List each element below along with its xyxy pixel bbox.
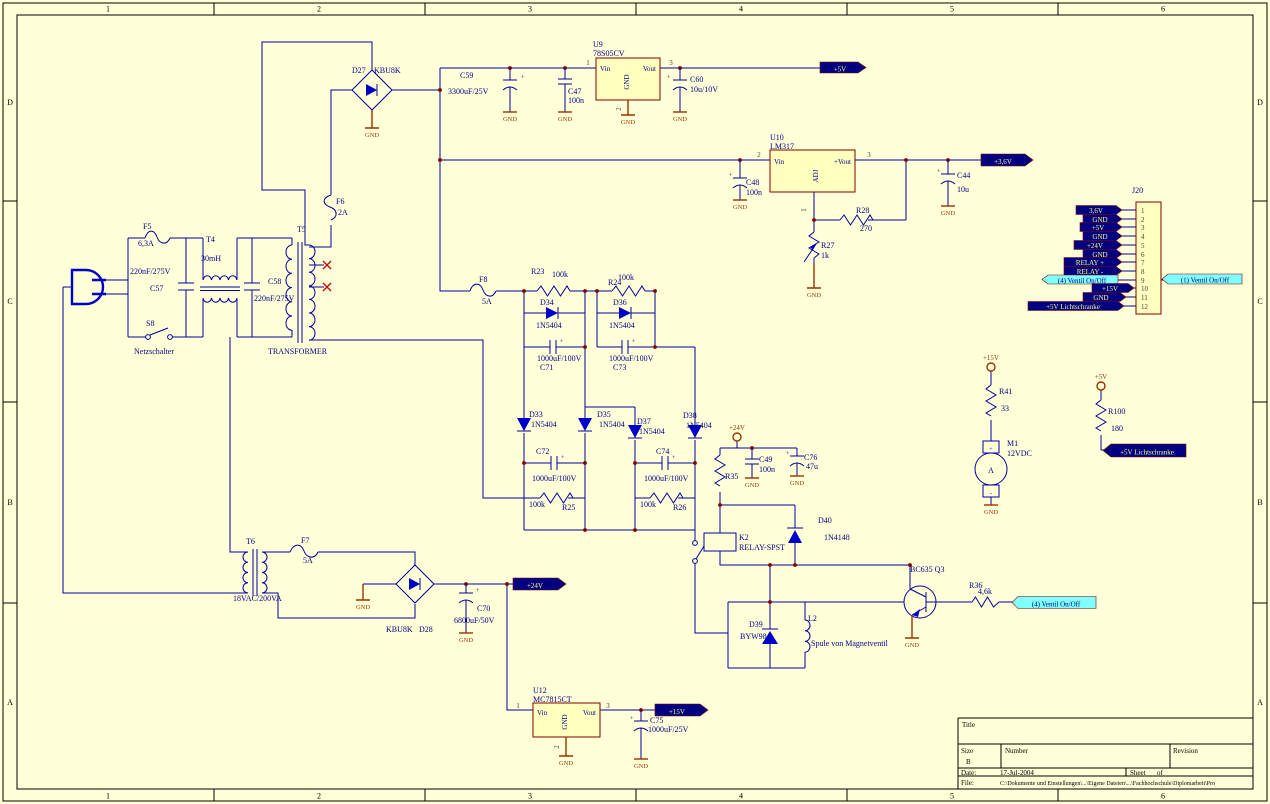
title-block: Title Size B Number Revision Date: 17-Ju… [958, 718, 1253, 789]
svg-text:GND: GND [984, 509, 998, 516]
motor-m1-plus: + [989, 447, 993, 453]
cap-c48-ref: C48 [746, 178, 759, 187]
fuse-f5[interactable]: F5 6,3A [138, 222, 170, 248]
power-port-15v-label: +15V [983, 354, 999, 362]
date-label: Date: [961, 769, 976, 777]
cap-c48-value: 100n [746, 188, 762, 197]
fuse-f8-value: 5A [482, 297, 492, 306]
cap-c75-value: 1000uF/25V [648, 725, 689, 734]
power-port-24v-label: +24V [729, 424, 745, 432]
svg-text:GND: GND [905, 642, 919, 649]
resistor-r100[interactable]: R100 180 [1096, 400, 1125, 433]
svg-text:GND: GND [745, 482, 759, 489]
cap-c76[interactable]: + C76 47u [786, 448, 818, 476]
diode-d34[interactable]: D34 1N5404 [536, 298, 562, 330]
svg-text:+: + [476, 588, 480, 594]
transformer-t6-value: 18VAC/200VA [233, 594, 282, 603]
svg-text:+: + [667, 75, 671, 81]
potentiometer-r27-ref: R27 [821, 241, 834, 250]
cap-c57[interactable]: 220nF/275V C57 [130, 267, 171, 293]
power-flag-15v-label: +15V [669, 708, 685, 716]
diode-d33-value: 1N5404 [531, 420, 557, 429]
fuse-f8-ref: F8 [479, 275, 487, 284]
resistor-r23[interactable]: R23 100k [531, 267, 570, 296]
gnd-symbol: GND [905, 615, 919, 649]
u9-pin1: 1 [586, 59, 590, 67]
file-label: File: [961, 779, 974, 787]
relay-k2-value: RELAY-SPST [739, 543, 785, 552]
potentiometer-r27-value: 1k [821, 251, 829, 260]
resistor-r25-value: 100k [529, 500, 545, 509]
size-value: B [966, 758, 971, 766]
cap-c59[interactable]: + C59 3300uF/25V [448, 68, 525, 112]
gnd-symbol: GND [559, 737, 573, 767]
diode-d39[interactable]: D39 BYW98 [740, 620, 778, 644]
cap-c72[interactable]: + C72 1000uF/100V [532, 447, 577, 483]
u10-pin-vout: +Vout [834, 158, 851, 166]
fuse-f7-value: 5A [303, 556, 313, 565]
switch-s8-value: Netzschalter [134, 347, 174, 356]
resistor-r24[interactable]: R24 100k [608, 273, 645, 296]
bridge-d28-value: KBU8K [386, 625, 413, 634]
gnd-symbol: GND [941, 206, 955, 217]
bridge-d28[interactable]: KBU8K D28 [386, 565, 434, 634]
gnd-symbol: GND [733, 200, 747, 211]
inductor-l2-value: Spule von Magnetventil [811, 639, 889, 648]
wires [63, 42, 1168, 710]
j20-pin: 5 [1141, 242, 1145, 250]
cap-c47-ref: C47 [568, 87, 581, 96]
cap-c58-ref: C58 [268, 277, 281, 286]
cap-c74[interactable]: + C74 1000uF/100V [644, 447, 689, 483]
number-label: Number [1005, 747, 1029, 755]
transistor-q3[interactable]: BC635 Q3 [904, 565, 944, 618]
fuse-f5-value: 6,3A [138, 239, 154, 248]
fuse-f6-ref: F6 [336, 197, 344, 206]
j20-net-flags[interactable]: 3,6V GND +5V GND +24V GND RELAY + RELAY … [1028, 206, 1242, 312]
u10-pin-adj: ADJ [812, 169, 820, 182]
svg-text:GND: GND [459, 637, 473, 644]
svg-text:+: + [729, 173, 733, 179]
svg-text:+: + [561, 455, 565, 461]
col-label: 6 [1161, 792, 1165, 801]
row-label: B [7, 498, 12, 507]
power-port-5v-label: +5V [1095, 373, 1108, 381]
resistor-r41-ref: R41 [999, 387, 1012, 396]
cap-c58-value: 220nF/275V [254, 294, 295, 303]
gnd-symbol: GND [503, 112, 517, 123]
choke-t4[interactable]: T4 30mH [201, 235, 237, 302]
resistor-r36[interactable]: R36 4,6k [969, 581, 999, 607]
gnd-symbol: GND [807, 264, 821, 299]
cap-c76-ref: C76 [804, 453, 817, 462]
col-label: 5 [950, 5, 954, 14]
cap-c47[interactable]: C47 100n [558, 68, 584, 112]
cap-c75[interactable]: + C75 1000uF/25V [630, 710, 689, 759]
cap-c44-value: 10u [957, 185, 969, 194]
col-label: 4 [739, 5, 743, 14]
j20-pin: 7 [1141, 259, 1145, 267]
resistor-r100-value: 180 [1111, 424, 1123, 433]
power-port-5v[interactable]: +5V [1095, 373, 1108, 390]
relay-k2-ref: K2 [739, 533, 749, 542]
transformer-t6[interactable]: T6 18VAC/200VA [233, 537, 282, 603]
svg-text:GND: GND [356, 604, 370, 611]
power-flag-36v[interactable]: +3,6V [981, 154, 1033, 166]
j20-pin: 3 [1141, 224, 1145, 232]
diode-d34-value: 1N5404 [536, 321, 562, 330]
bridge-d27-value: KBU8K [374, 66, 401, 75]
regulator-u12-value: MC7815CT [533, 695, 572, 704]
resistor-r25[interactable]: 100k R25 [529, 493, 575, 512]
row-label: A [7, 698, 13, 707]
diode-d37[interactable]: D37 1N5404 [628, 417, 665, 438]
svg-text:GND: GND [733, 204, 747, 211]
j20-pin: 9 [1141, 277, 1145, 285]
fuse-f6-value: 2A [338, 208, 348, 217]
row-label: B [1257, 498, 1262, 507]
regulator-u9[interactable]: U9 78S05CV Vin Vout GND 1 3 2 [586, 40, 673, 111]
resistor-r35-ref: R35 [725, 472, 738, 481]
size-label: Size [961, 747, 973, 755]
cap-c76-value: 47u [806, 462, 818, 471]
svg-text:GND: GND [621, 119, 635, 126]
svg-text:GND: GND [634, 763, 648, 770]
cap-c44-ref: C44 [957, 171, 970, 180]
diode-d40-ref: D40 [818, 516, 832, 525]
u10-pin-vin: Vin [774, 158, 785, 166]
col-label: 2 [317, 792, 321, 801]
u12-pin-gnd: GND [561, 714, 569, 729]
switch-s8-ref: S8 [146, 319, 154, 328]
u10-pin1: 1 [800, 208, 808, 212]
resistor-r25-ref: R25 [562, 503, 575, 512]
svg-text:+: + [672, 455, 676, 461]
resistor-r35[interactable]: R35 [715, 455, 738, 486]
bridge-d27-ref: D27 [352, 66, 366, 75]
cap-c73[interactable]: + 1000uF/100V C73 [609, 339, 654, 372]
svg-text:RELAY +: RELAY + [1076, 259, 1104, 267]
svg-text:GND: GND [1093, 294, 1108, 302]
diode-d34-ref: D34 [540, 298, 554, 307]
svg-text:3,6V: 3,6V [1089, 207, 1103, 215]
choke-t4-ref: T4 [206, 235, 215, 244]
title-label: Title [962, 721, 975, 729]
diode-d35-value: 1N5404 [599, 420, 625, 429]
gnd-symbol: GND [745, 478, 759, 489]
diode-d40-value: 1N4148 [824, 533, 850, 542]
u12-pin-vout: Vout [583, 709, 596, 717]
diode-d40[interactable]: D40 1N4148 [787, 516, 850, 543]
transformer-t5-ref: T5 [297, 225, 306, 234]
cap-c70[interactable]: + C70 6800uF/50V [454, 584, 495, 633]
svg-text:GND: GND [941, 210, 955, 217]
u12-pin2: 2 [553, 745, 561, 749]
power-flag-5v[interactable]: +5V [820, 62, 866, 74]
diode-d37-ref: D37 [637, 417, 651, 426]
gnd-symbol: GND [356, 584, 396, 611]
motor-m1-value: 12VDC [1007, 449, 1032, 458]
cap-c49[interactable]: C49 100n [745, 448, 775, 478]
cap-c48[interactable]: + C48 100n [729, 160, 762, 200]
j20-pin: 10 [1141, 285, 1149, 293]
cap-c60-ref: C60 [690, 75, 703, 84]
j20-pin: 11 [1141, 294, 1148, 302]
power-port-24v[interactable]: +24V [729, 424, 745, 441]
diode-d38[interactable]: D38 1N5404 [683, 411, 712, 438]
j20-pin: 12 [1141, 303, 1149, 311]
row-label: D [7, 98, 13, 107]
cap-c73-ref: C73 [613, 363, 626, 372]
regulator-u10-ref: U10 [770, 133, 784, 142]
gnd-symbol: GND [790, 476, 804, 487]
fuse-f8[interactable]: F8 5A [470, 275, 505, 306]
col-label: 3 [528, 792, 532, 801]
diode-d37-value: 1N5404 [639, 427, 665, 436]
diode-d38-value: 1N5404 [686, 421, 712, 430]
svg-text:GND: GND [503, 116, 517, 123]
u10-pin2: 2 [757, 151, 761, 159]
transformer-t5[interactable]: T5 TRANSFORMER [268, 225, 331, 356]
potentiometer-r27[interactable]: R27 1k [804, 232, 834, 264]
connector-j20-ref: J20 [1132, 186, 1143, 195]
net-flag-ventil-1: (1) Ventil On/Off [1181, 277, 1230, 285]
transformer-t6-ref: T6 [246, 537, 255, 546]
svg-text:+: + [521, 75, 525, 81]
diode-d36-ref: D36 [613, 298, 627, 307]
cap-c59-ref: C59 [460, 71, 473, 80]
u9-pin-vin: Vin [600, 65, 611, 73]
cap-c72-value: 1000uF/100V [532, 474, 577, 483]
schematic-sheet: 1 2 3 4 5 6 1 2 3 4 5 6 D C B A D C B A [0, 0, 1270, 804]
bridge-d28-ref: D28 [419, 625, 433, 634]
choke-t4-value: 30mH [201, 254, 221, 263]
fuse-f6[interactable]: F6 2A [324, 195, 348, 220]
diode-d39-value: BYW98 [740, 632, 767, 641]
col-label: 2 [317, 5, 321, 14]
net-flag-ventil-4[interactable]: (4) Ventil On/Off [1012, 597, 1096, 609]
cap-c60[interactable]: + C60 10u/10V [667, 68, 718, 112]
junction-dots [438, 66, 950, 712]
col-label: 3 [528, 5, 532, 14]
cap-c71-ref: C71 [540, 363, 553, 372]
regulator-u9-value: 78S05CV [593, 49, 625, 58]
u10-pin3: 3 [867, 151, 871, 159]
net-flag-ventil-4-label: (4) Ventil On/Off [1032, 601, 1081, 609]
svg-text:+5V Lichtschranke: +5V Lichtschranke [1046, 303, 1100, 311]
cap-c75-ref: C75 [650, 716, 663, 725]
cap-c49-value: 100n [759, 465, 775, 474]
col-label: 6 [1161, 5, 1165, 14]
u9-pin-vout: Vout [643, 65, 656, 73]
resistor-r26-value: 100k [640, 500, 656, 509]
j20-pin: 2 [1141, 216, 1145, 224]
resistor-r100-ref: R100 [1108, 407, 1125, 416]
fuse-f7[interactable]: F7 5A [290, 536, 325, 565]
svg-text:+: + [632, 339, 636, 345]
regulator-u9-ref: U9 [593, 40, 603, 49]
gnd-symbol: GND [984, 505, 998, 516]
cap-c73-value: 1000uF/100V [609, 354, 654, 363]
svg-text:+: + [786, 451, 790, 457]
resistor-r41[interactable]: R41 33 [986, 385, 1012, 416]
diode-d33-ref: D33 [529, 410, 543, 419]
resistor-r23-value: 100k [552, 270, 568, 279]
fuse-f7-ref: F7 [301, 536, 309, 545]
fuse-f5-ref: F5 [143, 222, 151, 231]
svg-text:GND: GND [673, 116, 687, 123]
cap-c58[interactable]: C58 220nF/275V [254, 277, 295, 303]
gnd-symbol: GND [459, 633, 473, 644]
resistor-r26[interactable]: 100k R26 [640, 493, 686, 512]
col-label: 1 [106, 792, 110, 801]
row-label: A [1257, 698, 1263, 707]
power-port-15v[interactable]: +15V [983, 354, 999, 371]
diode-d33[interactable]: D33 1N5404 [517, 410, 557, 431]
motor-m1[interactable]: + - A M1 12VDC [975, 439, 1032, 497]
date-value: 17-Jul-2004 [1000, 769, 1034, 777]
schematic-canvas: 1 2 3 4 5 6 1 2 3 4 5 6 D C B A D C B A [0, 0, 1270, 804]
svg-text:GND: GND [790, 480, 804, 487]
u12-pin1: 1 [516, 702, 520, 710]
bridge-d27[interactable]: D27 KBU8K [352, 66, 401, 110]
power-flag-lichtschranke[interactable]: +5V Lichtschranke [1103, 444, 1186, 457]
motor-m1-minus: - [990, 491, 992, 497]
cap-c70-ref: C70 [477, 604, 490, 613]
gnd-symbol: GND [558, 112, 572, 123]
cap-c72-ref: C72 [536, 447, 549, 456]
regulator-u10-value: LM317 [770, 142, 794, 151]
col-label: 4 [739, 792, 743, 801]
cap-c71[interactable]: + 1000uF/100V C71 [537, 339, 582, 372]
row-label: D [1257, 98, 1263, 107]
diode-d36[interactable]: D36 1N5404 [609, 298, 635, 330]
regulator-u12-ref: U12 [533, 686, 547, 695]
row-label: C [1257, 297, 1262, 306]
j20-pin: 1 [1141, 207, 1145, 215]
mains-plug[interactable] [72, 270, 106, 304]
transformer-t5-value: TRANSFORMER [268, 347, 328, 356]
cap-c70-value: 6800uF/50V [454, 616, 495, 625]
power-flag-24v-label: +24V [527, 582, 543, 590]
cap-c71-value: 1000uF/100V [537, 354, 582, 363]
file-value: C:\Dokumente und Einstellungen\...\Eigen… [1000, 781, 1215, 787]
row-label: C [7, 297, 12, 306]
svg-text:+5V: +5V [1092, 224, 1105, 232]
j20-pin: 8 [1141, 268, 1145, 276]
gnd-symbol: GND [621, 100, 635, 126]
cap-c74-ref: C74 [656, 447, 669, 456]
motor-m1-ref: M1 [1007, 439, 1018, 448]
diode-d36-value: 1N5404 [609, 321, 635, 330]
svg-text:GND: GND [559, 760, 573, 767]
cap-c59-value: 3300uF/25V [448, 87, 489, 96]
svg-text:+: + [630, 716, 634, 722]
gnd-symbol: GND [634, 759, 648, 770]
u12-pin3: 3 [606, 702, 610, 710]
power-flag-24v[interactable]: +24V [513, 578, 566, 590]
resistor-r26-ref: R26 [673, 503, 686, 512]
svg-text:GND: GND [807, 292, 821, 299]
cap-c49-ref: C49 [759, 455, 772, 464]
cap-c57-value: 220nF/275V [130, 267, 171, 276]
svg-text:+15V: +15V [1102, 285, 1118, 293]
of-label: of [1157, 769, 1164, 777]
resistor-r23-ref: R23 [531, 267, 544, 276]
no-erc-marker [323, 261, 331, 291]
svg-text:+24V: +24V [1087, 242, 1103, 250]
resistor-r24-value: 100k [618, 273, 634, 282]
j20-pin: 6 [1141, 251, 1145, 259]
diode-d38-ref: D38 [683, 411, 697, 420]
sheet-label: Sheet [1130, 769, 1146, 777]
cap-c74-value: 1000uF/100V [644, 474, 689, 483]
svg-text:GND: GND [1092, 233, 1107, 241]
svg-text:+: + [560, 339, 564, 345]
gnd-symbol: GND [673, 112, 687, 123]
motor-m1-symbol: A [988, 466, 994, 475]
power-flag-36v-label: +3,6V [994, 158, 1012, 166]
svg-text:GND: GND [558, 116, 572, 123]
cap-c57-ref: C57 [150, 284, 163, 293]
u9-pin3: 3 [669, 59, 673, 67]
relay-k2[interactable]: K2 RELAY-SPST [693, 533, 785, 563]
resistor-r41-value: 33 [1001, 404, 1009, 413]
diode-d35-ref: D35 [597, 410, 611, 419]
power-flag-5v-label: +5V [834, 66, 847, 74]
u9-pin-gnd: GND [623, 74, 631, 89]
regulator-u12[interactable]: U12 MC7815CT Vin Vout GND 1 3 2 [516, 686, 610, 749]
cap-c47-value: 100n [568, 96, 584, 105]
revision-label: Revision [1173, 747, 1198, 755]
resistor-r28-ref: R28 [856, 206, 869, 215]
col-label: 1 [106, 5, 110, 14]
u9-pin2: 2 [615, 107, 623, 111]
u12-pin-vin: Vin [537, 709, 548, 717]
svg-text:GND: GND [365, 132, 379, 139]
cap-c44[interactable]: + C44 10u [937, 160, 970, 206]
diode-d39-ref: D39 [749, 620, 763, 629]
inductor-l2[interactable]: L2 Spule von Magnetventil [805, 614, 889, 652]
resistor-r36-value: 4,6k [978, 587, 992, 596]
col-label: 5 [950, 792, 954, 801]
resistor-r28-value: 270 [860, 224, 872, 233]
power-flag-15v[interactable]: +15V [655, 704, 708, 716]
svg-text:+: + [937, 169, 941, 175]
transistor-q3-ref: BC635 Q3 [910, 565, 944, 574]
power-flag-lichtschranke-label: +5V Lichtschranke [1120, 449, 1174, 457]
inductor-l2-ref: L2 [808, 614, 817, 623]
connector-j20[interactable]: J20 1 2 3 4 5 6 7 8 9 10 11 12 [1132, 186, 1161, 314]
j20-pin: 4 [1141, 233, 1145, 241]
gnd-symbol: GND [365, 110, 379, 139]
cap-c60-value: 10u/10V [690, 85, 718, 94]
